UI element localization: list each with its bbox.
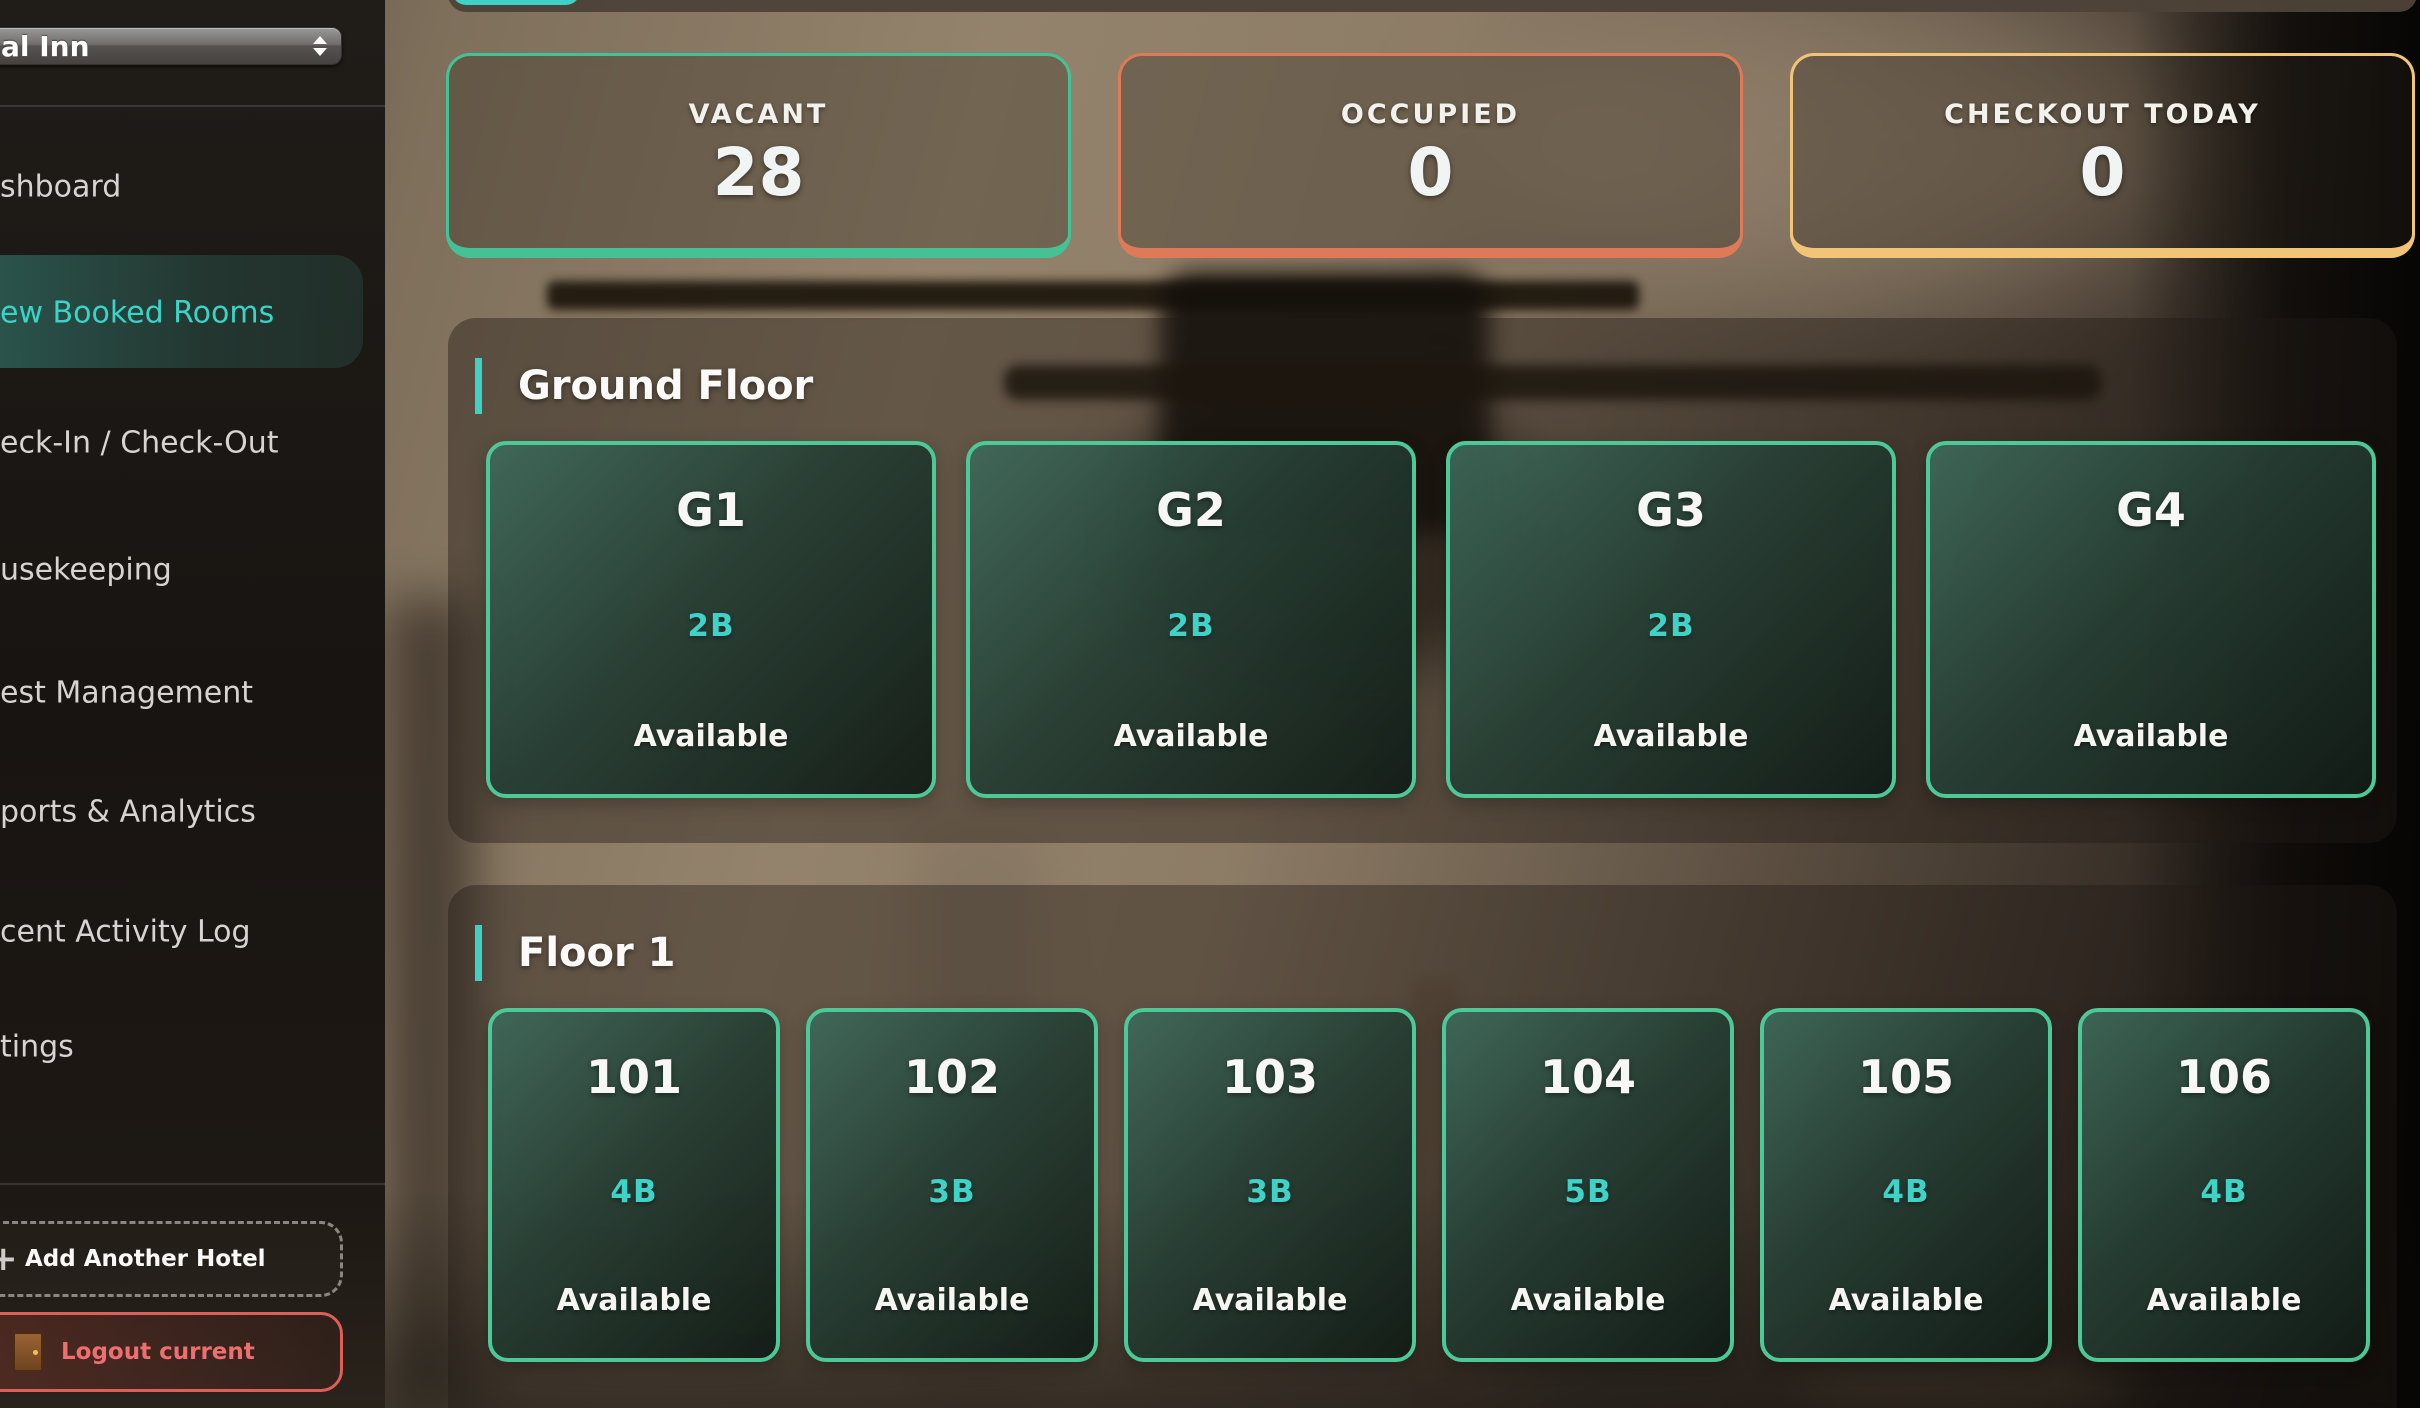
sidebar: al Inn shboard ew Booked Rooms eck-In / … [0,0,385,1408]
occupied-stat-label: OCCUPIED [1341,99,1520,130]
room-card-g4[interactable]: G4 Available [1926,441,2376,798]
plus-icon: + [0,1239,18,1279]
room-number: 103 [1222,1050,1318,1104]
section-accent-bar [475,358,482,414]
room-number: 102 [904,1050,1000,1104]
ground-floor-section: Ground Floor G1 2B Available G2 2B Avail… [448,318,2397,843]
page-header-bar [448,0,2417,12]
room-number: G2 [1156,483,1226,537]
floor-1-room-grid: 101 4B Available 102 3B Available 103 3B… [488,1008,2370,1362]
add-another-hotel-button[interactable]: + Add Another Hotel [0,1221,343,1297]
room-status: Available [634,719,789,754]
room-status: Available [2147,1283,2302,1318]
door-icon [13,1332,43,1372]
room-card-106[interactable]: 106 4B Available [2078,1008,2370,1362]
sidebar-item-reports-analytics[interactable]: ports & Analytics [0,795,256,830]
sidebar-item-guest-management[interactable]: est Management [0,676,253,711]
room-card-g3[interactable]: G3 2B Available [1446,441,1896,798]
section-accent-bar [475,925,482,981]
room-status: Available [557,1283,712,1318]
room-number: G3 [1636,483,1706,537]
room-card-105[interactable]: 105 4B Available [1760,1008,2052,1362]
active-tab-indicator[interactable] [452,0,580,5]
sidebar-item-view-booked-rooms[interactable]: ew Booked Rooms [0,296,274,331]
room-bed-count: 3B [928,1174,975,1214]
room-card-g1[interactable]: G1 2B Available [486,441,936,798]
room-status: Available [875,1283,1030,1318]
ground-floor-room-grid: G1 2B Available G2 2B Available G3 2B Av… [486,441,2376,798]
floor-1-header: Floor 1 [475,925,675,981]
sidebar-divider-bottom [0,1183,385,1185]
room-number: 106 [2176,1050,2272,1104]
room-bed-count: 2B [1647,608,1694,648]
room-status: Available [2074,719,2229,754]
logout-button[interactable]: Logout current [0,1312,343,1392]
hotel-dashboard-screen: VACANT 28 OCCUPIED 0 CHECKOUT TODAY 0 Gr… [0,0,2420,1408]
checkout-today-stat-card: CHECKOUT TODAY 0 [1790,53,2415,258]
room-bed-count: 5B [1564,1174,1611,1214]
sidebar-divider-top [0,105,385,107]
room-bed-count: 4B [1882,1174,1929,1214]
floor-1-title: Floor 1 [518,930,675,976]
logout-label: Logout current [61,1339,255,1365]
room-status: Available [1511,1283,1666,1318]
occupancy-stats-row: VACANT 28 OCCUPIED 0 CHECKOUT TODAY 0 [446,53,2415,258]
room-card-103[interactable]: 103 3B Available [1124,1008,1416,1362]
room-card-g2[interactable]: G2 2B Available [966,441,1416,798]
occupied-stat-card: OCCUPIED 0 [1118,53,1743,258]
room-bed-count: 3B [1246,1174,1293,1214]
add-another-hotel-label: Add Another Hotel [25,1246,266,1272]
room-status: Available [1193,1283,1348,1318]
room-bed-count: 4B [610,1174,657,1214]
hotel-select-value: al Inn [1,30,90,63]
ground-floor-title: Ground Floor [518,363,813,409]
room-bed-count: 2B [687,608,734,648]
room-card-102[interactable]: 102 3B Available [806,1008,1098,1362]
room-number: 101 [586,1050,682,1104]
room-card-104[interactable]: 104 5B Available [1442,1008,1734,1362]
room-status: Available [1594,719,1749,754]
vacant-stat-value: 28 [713,140,805,206]
room-bed-count: 4B [2200,1174,2247,1214]
room-card-101[interactable]: 101 4B Available [488,1008,780,1362]
occupied-stat-value: 0 [1408,140,1454,206]
ground-floor-header: Ground Floor [475,358,813,414]
room-number: G4 [2116,483,2186,537]
vacant-stat-label: VACANT [689,99,829,130]
select-spinner-icon [313,36,327,56]
room-bed-count: 2B [1167,608,1214,648]
room-number: 104 [1540,1050,1636,1104]
sidebar-item-dashboard[interactable]: shboard [0,170,121,205]
sidebar-item-activity-log[interactable]: cent Activity Log [0,915,251,950]
room-status: Available [1114,719,1269,754]
floor-1-section: Floor 1 101 4B Available 102 3B Availabl… [448,885,2397,1408]
checkout-today-stat-label: CHECKOUT TODAY [1944,99,2261,130]
room-status: Available [1829,1283,1984,1318]
room-number: G1 [676,483,746,537]
checkout-today-stat-value: 0 [2080,140,2126,206]
sidebar-item-settings[interactable]: tings [0,1030,74,1065]
hotel-select[interactable]: al Inn [0,27,342,65]
sidebar-item-housekeeping[interactable]: usekeeping [0,553,172,588]
room-number: 105 [1858,1050,1954,1104]
vacant-stat-card: VACANT 28 [446,53,1071,258]
sidebar-item-check-in-out[interactable]: eck-In / Check-Out [0,426,279,461]
